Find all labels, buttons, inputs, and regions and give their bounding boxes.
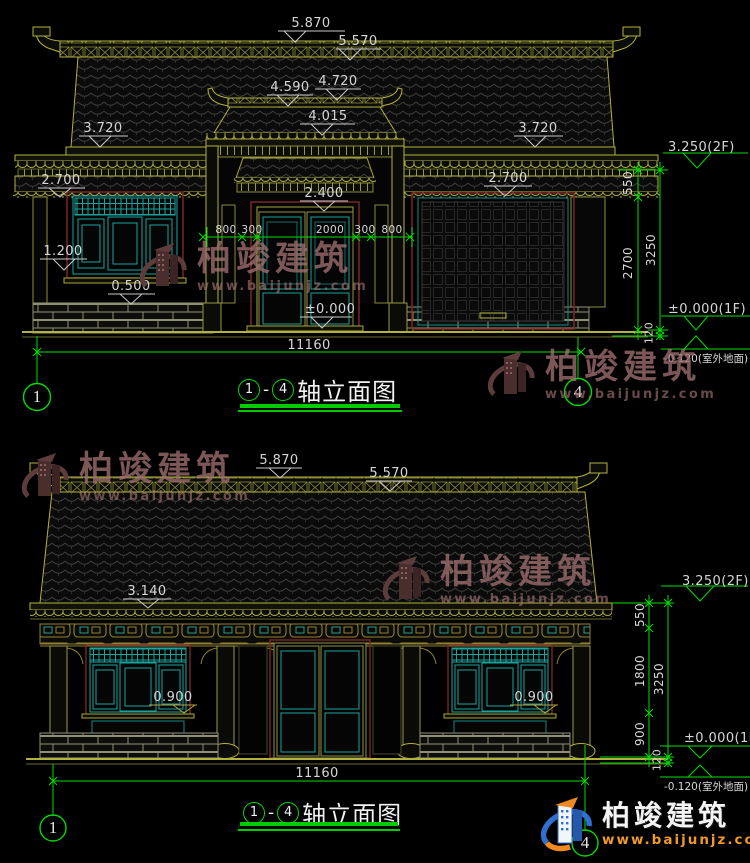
watermark-top-center: 柏竣建筑 www.baijunjz.com — [140, 240, 368, 296]
dim-4590-top: 4.590 — [270, 80, 309, 95]
watermark-url: www.baijunjz.com — [79, 490, 250, 504]
vdim-3250-top: 3250 — [644, 234, 658, 266]
title-axis-bubble-end-bottom: 4 — [277, 802, 299, 824]
dim-4015-top: 4.015 — [308, 109, 347, 124]
title-text-top: 轴立面图 — [297, 372, 397, 407]
chain-800-right: 800 — [381, 224, 402, 236]
dim-0900-left: 0.900 — [153, 690, 192, 705]
dim-3720-right: 3.720 — [518, 121, 557, 136]
title-underline-thick-bottom — [240, 822, 398, 826]
level-2f-bottom: 3.250(2F) — [682, 574, 749, 589]
title-dash-bottom: - — [268, 803, 274, 823]
title-underline-thin-bottom — [238, 829, 400, 831]
dim-0000-top: ±0.000 — [305, 302, 356, 317]
dim-5570-bottom: 5.570 — [369, 466, 408, 481]
watermark-logo-icon — [22, 450, 70, 506]
dim-1200-top: 1.200 — [43, 244, 82, 259]
brand-logo-icon — [540, 795, 594, 853]
bot-double-door — [239, 640, 401, 758]
top-brick-base-left — [33, 303, 213, 333]
watermark-brand: 柏竣建筑 — [545, 350, 716, 386]
dim-3720-left: 3.720 — [83, 121, 122, 136]
watermark-logo-icon — [383, 553, 431, 609]
vdim-550-top: 550 — [621, 171, 635, 195]
watermark-brand: 柏竣建筑 — [197, 242, 368, 278]
v dim-900-bottom: 900 — [633, 722, 647, 746]
title-dash-top: - — [263, 380, 269, 400]
axis-number-1-bottom: 1 — [49, 818, 58, 838]
dim-2700-right: 2.700 — [488, 171, 527, 186]
dim-total-width-bottom: 11160 — [295, 766, 338, 781]
level-1f-bottom: ±0.000(1F) — [684, 731, 750, 746]
dim-0900-right: 0.900 — [514, 690, 553, 705]
dim-2400-top: 2.400 — [304, 186, 343, 201]
watermark-bottom-center: 柏竣建筑 www.baijunjz.com — [383, 553, 611, 609]
vdim-3250-bottom: 3250 — [652, 663, 666, 695]
watermark-bottom-left: 柏竣建筑 www.baijunjz.com — [22, 450, 250, 506]
watermark-logo-icon — [140, 240, 188, 296]
vdim-120-top: 120 — [643, 322, 656, 344]
chain-300-left: 300 — [241, 224, 262, 236]
brand-logo-text: 柏竣建筑 — [602, 801, 750, 830]
top-ground-line — [22, 332, 648, 337]
dim-5870-top: 5.870 — [291, 16, 330, 31]
title-underline-thick-top — [240, 404, 400, 408]
chain-300-right: 300 — [354, 224, 375, 236]
top-shutter-door — [412, 193, 574, 329]
dim-5870-bottom: 5.870 — [259, 453, 298, 468]
dim-3140-bottom: 3.140 — [127, 584, 166, 599]
title-axis-bubble-start-bottom: 1 — [243, 802, 265, 824]
dim-5570-top: 5.570 — [338, 34, 377, 49]
cad-canvas: { "watermark": { "brand": "柏竣建筑", "url":… — [0, 0, 750, 863]
title-underline-thin-top — [238, 410, 402, 412]
brand-logo: 柏竣建筑 www.baijunjz.com — [540, 795, 750, 853]
top-drawing-title: 1 - 4 轴立面图 — [238, 372, 397, 407]
chain-800-left: 800 — [215, 224, 236, 236]
level-outdoor-bottom: -0.120(室外地面) — [664, 779, 748, 794]
level-1f-top: ±0.000(1F) — [668, 302, 746, 317]
watermark-url: www.baijunjz.com — [197, 280, 368, 294]
watermark-top-right: 柏竣建筑 www.baijunjz.com — [488, 348, 716, 404]
dim-4720-top: 4.720 — [318, 74, 357, 89]
chain-2000: 2000 — [316, 224, 344, 236]
watermark-url: www.baijunjz.com — [440, 593, 611, 607]
brand-logo-url: www.baijunjz.com — [602, 833, 750, 847]
watermark-brand: 柏竣建筑 — [79, 452, 250, 488]
vdim-1800-bottom: 1800 — [633, 655, 647, 687]
watermark-logo-icon — [488, 348, 536, 404]
dim-2700-left: 2.700 — [41, 173, 80, 188]
title-axis-bubble-end-top: 4 — [272, 379, 294, 401]
axis-number-1-top: 1 — [33, 387, 42, 407]
vdim-550-bottom: 550 — [633, 603, 647, 627]
vdim-2700-top: 2700 — [621, 247, 635, 279]
dim-total-width-top: 11160 — [287, 338, 330, 353]
watermark-url: www.baijunjz.com — [545, 388, 716, 402]
bot-ground-line — [26, 759, 668, 764]
level-2f-top: 3.250(2F) — [668, 140, 735, 155]
title-axis-bubble-start-top: 1 — [238, 379, 260, 401]
vdim-120-bottom: 120 — [651, 749, 664, 771]
watermark-brand: 柏竣建筑 — [440, 555, 611, 591]
